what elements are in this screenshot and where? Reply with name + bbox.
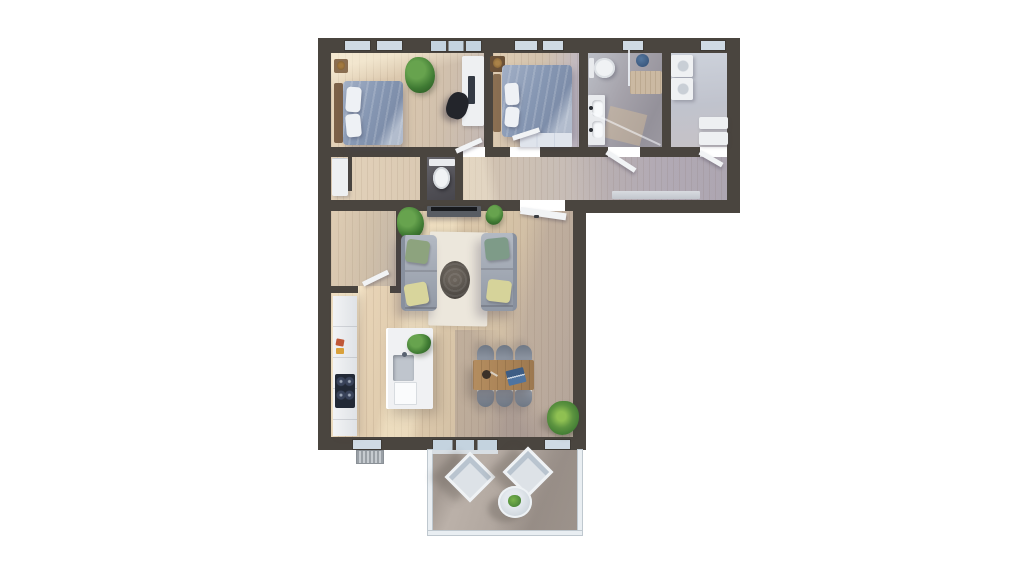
- wc-toilet-tank: [429, 159, 455, 166]
- bedroom1-plant: [405, 57, 435, 93]
- window-bedroom1-b: [376, 40, 403, 51]
- hallway-sideboard: [612, 191, 700, 199]
- wall-bedrooms-b: [485, 147, 510, 157]
- wall-right-upper: [727, 38, 740, 213]
- sofa-right-green-cushion: [484, 237, 510, 261]
- island-faucet: [402, 352, 407, 357]
- bedroom2-bench: [493, 74, 501, 132]
- window-utility: [700, 40, 726, 51]
- bedroom1-dried-plant: [337, 61, 345, 70]
- island-sink: [393, 355, 414, 381]
- dining-chair-bottom-3: [515, 388, 532, 407]
- wall-bedrooms-a: [331, 147, 455, 157]
- wall-bedrooms-c: [540, 147, 608, 157]
- floor-plan: [0, 0, 1024, 576]
- tv: [431, 207, 477, 211]
- dining-chair-bottom-1: [477, 388, 494, 407]
- coffee-table: [440, 261, 470, 299]
- window-kitchen: [352, 439, 382, 450]
- kitchen-radiator: [356, 450, 384, 464]
- wall-entrance-closet: [348, 157, 352, 191]
- wall-storage-bottom-a: [331, 286, 358, 293]
- balcony-railing-bottom: [428, 531, 582, 535]
- sofa-right-yellow-cushion: [486, 279, 513, 304]
- bathroom-toilet: [594, 58, 615, 78]
- window-bedroom2-b: [542, 40, 564, 51]
- wall-left: [318, 38, 331, 450]
- kitchen-cooktop: [335, 374, 355, 408]
- utility-shelf-bottom: [699, 132, 728, 145]
- kitchen-item-yellow: [336, 348, 344, 354]
- island-panel: [394, 382, 417, 405]
- bedroom2-pillow-top: [504, 83, 520, 106]
- bathroom-blue-stool: [636, 54, 649, 67]
- bathroom-shower-tray: [630, 71, 662, 94]
- wall-bottom-upper-right: [585, 200, 740, 213]
- wall-bedrooms-d: [640, 147, 700, 157]
- bathroom-faucet-1: [589, 106, 593, 110]
- kitchen-item-red: [335, 338, 344, 346]
- wall-bath-utility: [662, 53, 671, 147]
- dining-chair-bottom-2: [496, 388, 513, 407]
- wall-bed2-bath: [579, 53, 588, 147]
- balcony-door-track: [432, 450, 498, 454]
- bathroom-faucet-2: [589, 128, 593, 132]
- bathroom-basin-2: [592, 121, 603, 138]
- sofa-left-yellow-cushion: [403, 281, 429, 307]
- window-bedroom1-a: [344, 40, 371, 51]
- bedroom2-dried-plant: [493, 58, 502, 68]
- utility-washer: [671, 55, 693, 77]
- wall-hall-bottom-b: [565, 200, 586, 211]
- kitchen-counter: [333, 296, 357, 436]
- window-bathroom: [622, 40, 644, 51]
- bedroom2-pillow-bottom: [504, 106, 520, 127]
- utility-shelf-top: [699, 117, 728, 129]
- utility-dryer: [671, 78, 693, 100]
- sofa-left-green-cushion: [405, 239, 431, 265]
- bedroom1-headboard: [334, 83, 343, 143]
- wc-toilet: [433, 167, 450, 189]
- window-dining: [544, 439, 571, 450]
- wall-wc-left: [420, 147, 427, 207]
- bedroom1-pillow-bottom: [345, 113, 362, 137]
- bedroom1-monitor: [468, 76, 475, 104]
- balcony-railing-left: [428, 450, 432, 535]
- wall-wc-right: [455, 147, 463, 207]
- window-bedroom2-a: [514, 40, 538, 51]
- balcony-railing-right: [578, 450, 582, 535]
- bedroom1-pillow-top: [345, 87, 362, 113]
- french-window-bedroom1: [430, 40, 482, 52]
- living-door-handle: [534, 215, 539, 218]
- entrance-closet: [332, 158, 348, 196]
